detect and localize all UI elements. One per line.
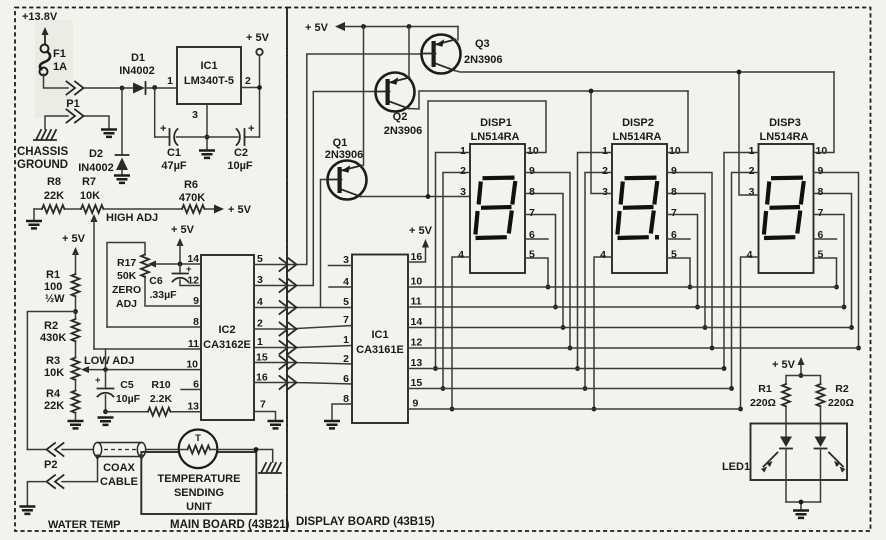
- svg-text:CA3161E: CA3161E: [356, 344, 404, 356]
- svg-text:DISP3: DISP3: [769, 117, 801, 129]
- svg-text:2: 2: [245, 75, 251, 87]
- svg-text:9: 9: [413, 398, 419, 410]
- svg-text:12: 12: [187, 275, 199, 287]
- svg-text:½W: ½W: [45, 293, 65, 305]
- svg-text:R8: R8: [47, 176, 61, 188]
- svg-text:MAIN BOARD (43B21): MAIN BOARD (43B21): [170, 519, 290, 531]
- svg-text:HIGH ADJ: HIGH ADJ: [106, 212, 158, 224]
- svg-text:ADJ: ADJ: [116, 298, 137, 310]
- svg-text:+ 5V: + 5V: [305, 22, 329, 34]
- svg-text:IC1: IC1: [200, 60, 217, 72]
- svg-text:+13.8V: +13.8V: [22, 11, 58, 23]
- svg-text:22K: 22K: [44, 190, 64, 202]
- svg-text:+ 5V: + 5V: [246, 32, 270, 44]
- svg-text:3: 3: [257, 274, 263, 286]
- svg-text:5: 5: [343, 296, 349, 308]
- svg-text:+ 5V: + 5V: [409, 225, 433, 237]
- svg-text:1A: 1A: [53, 61, 67, 73]
- svg-text:P1: P1: [66, 98, 79, 110]
- svg-text:LOW ADJ: LOW ADJ: [84, 355, 134, 367]
- svg-text:IC2: IC2: [218, 324, 235, 336]
- svg-text:R17: R17: [117, 257, 136, 269]
- svg-text:D1: D1: [131, 52, 145, 64]
- svg-text:220Ω: 220Ω: [828, 397, 854, 409]
- svg-text:R6: R6: [184, 179, 198, 191]
- svg-text:14: 14: [187, 253, 199, 265]
- svg-text:+ 5V: + 5V: [62, 233, 86, 245]
- svg-text:22K: 22K: [44, 400, 64, 412]
- svg-text:.33µF: .33µF: [149, 289, 177, 301]
- svg-text:14: 14: [411, 316, 423, 328]
- svg-text:F1: F1: [53, 48, 66, 60]
- svg-text:LN514RA: LN514RA: [760, 131, 809, 143]
- svg-text:C1: C1: [167, 147, 181, 159]
- svg-text:+ 5V: + 5V: [228, 204, 252, 216]
- svg-text:LN514RA: LN514RA: [613, 131, 662, 143]
- svg-text:P2: P2: [44, 459, 57, 471]
- svg-text:LED1: LED1: [722, 461, 750, 473]
- svg-text:LM340T-5: LM340T-5: [184, 75, 234, 87]
- svg-text:UNIT: UNIT: [186, 501, 212, 513]
- svg-text:6: 6: [343, 373, 349, 385]
- svg-text:10µF: 10µF: [116, 393, 141, 405]
- svg-text:+ 5V: + 5V: [772, 359, 796, 371]
- svg-text:LN514RA: LN514RA: [471, 131, 520, 143]
- svg-text:430K: 430K: [40, 332, 66, 344]
- svg-text:16: 16: [411, 251, 423, 263]
- svg-text:47µF: 47µF: [161, 160, 187, 172]
- svg-text:3: 3: [192, 109, 198, 121]
- svg-text:6: 6: [193, 379, 199, 391]
- svg-text:3: 3: [343, 254, 349, 266]
- svg-text:2N3906: 2N3906: [464, 54, 503, 66]
- svg-text:C5: C5: [120, 379, 134, 391]
- svg-text:4: 4: [343, 276, 349, 288]
- svg-text:Q2: Q2: [393, 111, 408, 123]
- svg-text:T: T: [195, 433, 201, 444]
- svg-text:50K: 50K: [117, 270, 137, 282]
- svg-text:10K: 10K: [80, 190, 100, 202]
- svg-text:8: 8: [343, 393, 349, 405]
- svg-text:12: 12: [411, 337, 423, 349]
- svg-text:11: 11: [188, 338, 199, 350]
- svg-text:2N3906: 2N3906: [384, 125, 423, 137]
- svg-text:DISP2: DISP2: [622, 117, 654, 129]
- svg-text:220Ω: 220Ω: [750, 397, 776, 409]
- svg-text:100: 100: [44, 281, 62, 293]
- svg-text:7: 7: [343, 314, 349, 326]
- svg-text:13: 13: [187, 401, 199, 413]
- svg-text:15: 15: [256, 352, 268, 364]
- svg-text:CHASSIS: CHASSIS: [17, 146, 68, 158]
- svg-text:10: 10: [411, 276, 423, 288]
- svg-text:16: 16: [256, 372, 268, 384]
- svg-text:CA3162E: CA3162E: [203, 339, 251, 351]
- svg-text:R2: R2: [44, 320, 58, 332]
- svg-text:15: 15: [411, 377, 423, 389]
- svg-text:WATER TEMP: WATER TEMP: [48, 519, 121, 531]
- svg-text:Q3: Q3: [475, 38, 490, 50]
- svg-text:1: 1: [257, 336, 263, 348]
- svg-text:8: 8: [193, 316, 199, 328]
- svg-text:R1: R1: [758, 383, 772, 395]
- svg-text:IN4002: IN4002: [119, 65, 154, 77]
- svg-text:R1: R1: [46, 269, 60, 281]
- svg-text:+ 5V: + 5V: [171, 224, 195, 236]
- svg-text:DISPLAY BOARD (43B15): DISPLAY BOARD (43B15): [296, 516, 435, 528]
- svg-text:470K: 470K: [179, 192, 205, 204]
- svg-text:IN4002: IN4002: [78, 162, 113, 174]
- svg-text:Q1: Q1: [333, 137, 348, 149]
- svg-text:11: 11: [411, 296, 422, 308]
- svg-text:SENDING: SENDING: [174, 487, 224, 499]
- svg-text:+: +: [186, 264, 192, 275]
- svg-text:5: 5: [257, 253, 263, 265]
- svg-text:D2: D2: [89, 148, 103, 160]
- svg-text:2N3906: 2N3906: [325, 149, 364, 161]
- svg-text:2: 2: [343, 353, 349, 365]
- svg-text:TEMPERATURE: TEMPERATURE: [158, 473, 241, 485]
- svg-text:R2: R2: [835, 383, 849, 395]
- svg-text:7: 7: [260, 399, 266, 411]
- svg-text:C6: C6: [149, 275, 163, 287]
- svg-text:+: +: [160, 123, 166, 135]
- svg-text:2.2K: 2.2K: [150, 393, 173, 405]
- svg-text:1: 1: [343, 334, 349, 346]
- svg-text:13: 13: [411, 357, 423, 369]
- svg-text:2: 2: [257, 318, 263, 330]
- svg-text:10: 10: [186, 359, 198, 371]
- svg-text:CABLE: CABLE: [100, 476, 138, 488]
- svg-text:R4: R4: [46, 388, 61, 400]
- svg-text:COAX: COAX: [103, 462, 135, 474]
- svg-text:10K: 10K: [44, 367, 64, 379]
- svg-text:R3: R3: [46, 355, 60, 367]
- svg-text:ZERO: ZERO: [112, 284, 141, 296]
- svg-text:R7: R7: [82, 176, 96, 188]
- svg-text:GROUND: GROUND: [17, 159, 68, 171]
- svg-text:+: +: [248, 123, 254, 135]
- svg-text:9: 9: [193, 295, 199, 307]
- svg-text:IC1: IC1: [371, 329, 388, 341]
- svg-text:1: 1: [167, 75, 173, 87]
- svg-text:DISP1: DISP1: [480, 117, 512, 129]
- svg-text:R10: R10: [151, 379, 170, 391]
- svg-text:C2: C2: [234, 147, 248, 159]
- svg-text:4: 4: [257, 296, 263, 308]
- svg-text:+: +: [95, 375, 101, 386]
- svg-text:10µF: 10µF: [227, 160, 253, 172]
